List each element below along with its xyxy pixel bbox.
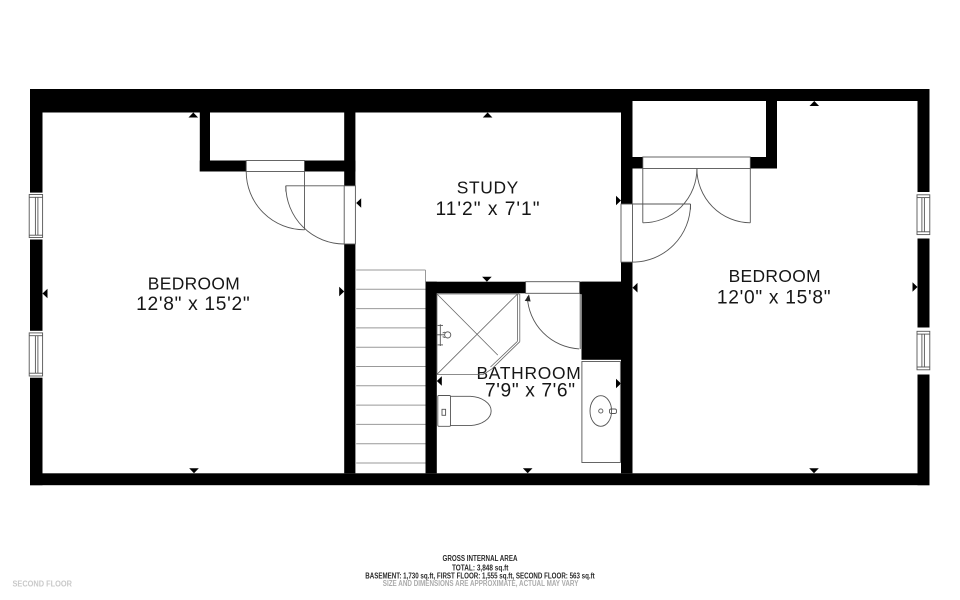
svg-text:12'0" x 15'8": 12'0" x 15'8": [717, 288, 831, 309]
svg-text:BEDROOM: BEDROOM: [729, 266, 821, 286]
svg-text:7'9" x 7'6": 7'9" x 7'6": [485, 381, 575, 402]
svg-text:STUDY: STUDY: [457, 178, 519, 198]
svg-text:BEDROOM: BEDROOM: [148, 273, 240, 293]
svg-text:SIZE AND DIMENSIONS ARE APPROX: SIZE AND DIMENSIONS ARE APPROXIMATE, ACT…: [383, 579, 579, 588]
svg-text:GROSS INTERNAL AREA: GROSS INTERNAL AREA: [443, 554, 518, 563]
svg-text:12'8" x 15'2": 12'8" x 15'2": [136, 294, 250, 315]
svg-text:SECOND FLOOR: SECOND FLOOR: [13, 580, 73, 589]
svg-text:11'2" x 7'1": 11'2" x 7'1": [436, 199, 540, 220]
